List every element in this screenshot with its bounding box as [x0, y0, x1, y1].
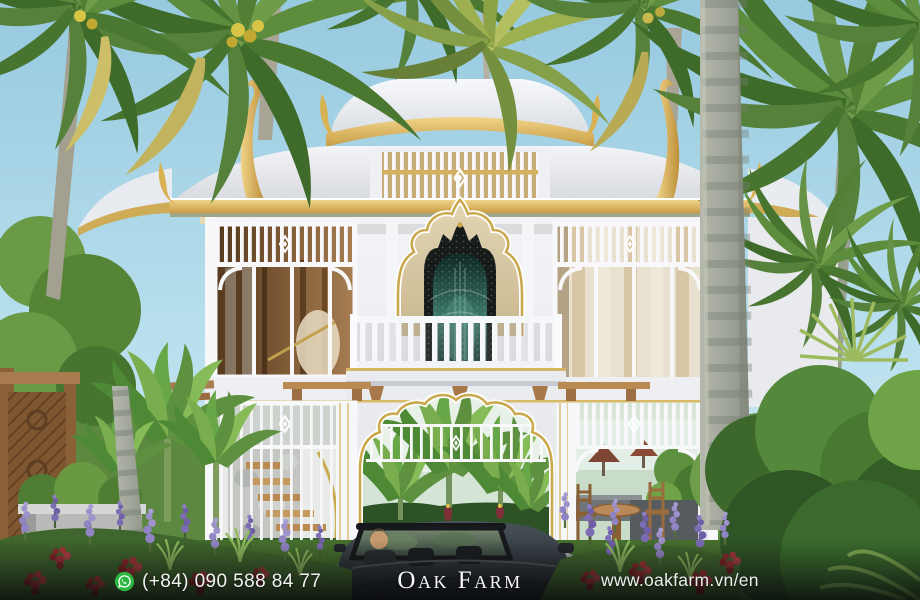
website-url: www.oakfarm.vn/en: [601, 570, 759, 590]
villa-rendering-image: (+84) 090 588 84 77 Oak Farm www.oakfarm…: [0, 0, 920, 600]
brand-logo: Oak Farm: [0, 567, 920, 595]
scene: [0, 0, 920, 600]
upper-floor-right-window: [555, 224, 705, 380]
balcony: [346, 314, 566, 401]
website-link[interactable]: www.oakfarm.vn/en: [601, 570, 759, 591]
brand-name: Oak Farm: [397, 567, 522, 594]
footer-bar: (+84) 090 588 84 77 Oak Farm www.oakfarm…: [0, 540, 920, 600]
upper-floor-left-veranda: [215, 224, 355, 378]
